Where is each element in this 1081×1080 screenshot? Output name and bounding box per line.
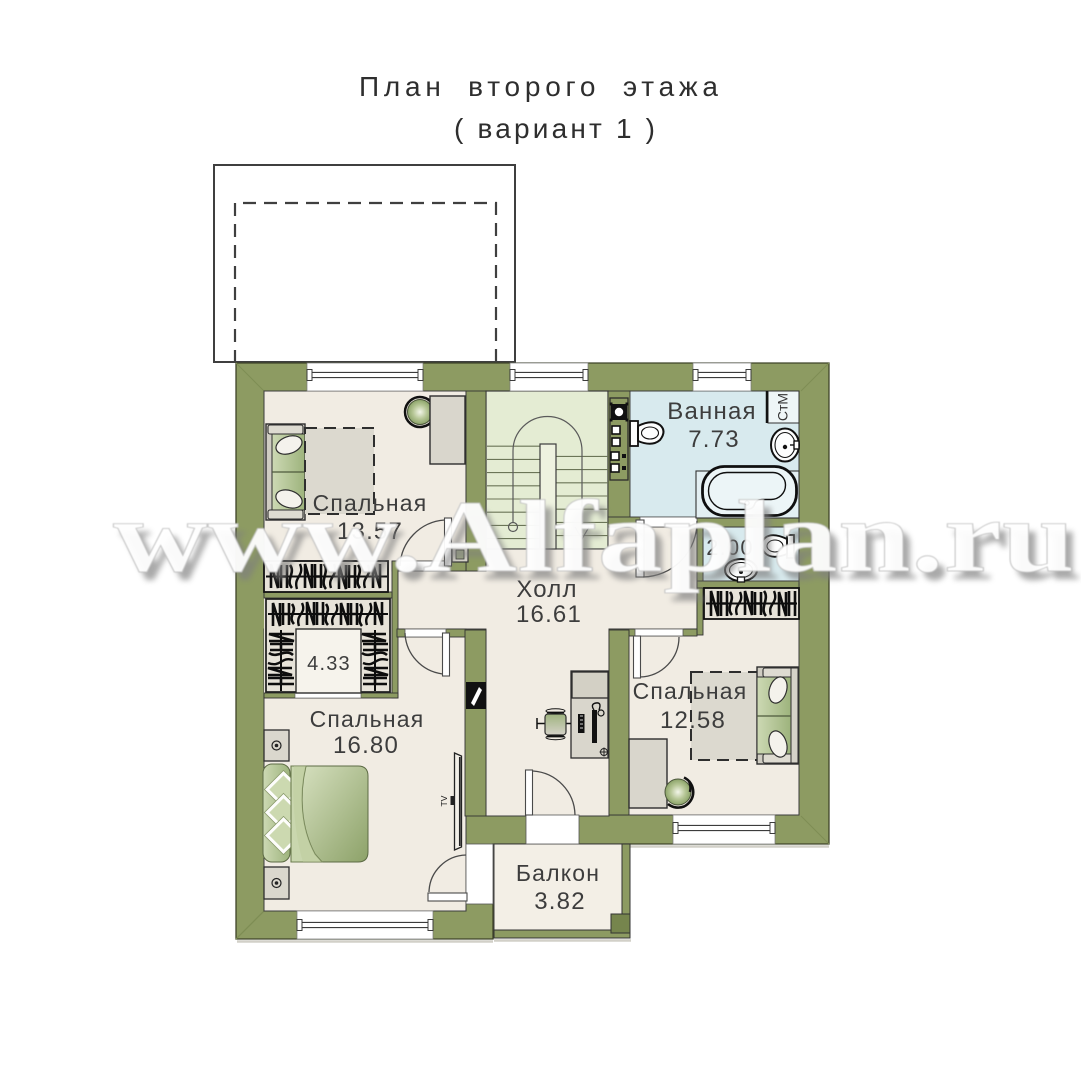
svg-text:www.Alfaplan.ru: www.Alfaplan.ru <box>113 480 1075 594</box>
svg-text:Ванная: Ванная <box>667 398 756 425</box>
svg-text:4.33: 4.33 <box>307 653 351 675</box>
svg-text:Спальная: Спальная <box>633 678 748 704</box>
svg-text:План второго этажа: План второго этажа <box>359 71 721 102</box>
svg-text:3.82: 3.82 <box>534 888 586 915</box>
svg-text:16.61: 16.61 <box>516 601 582 628</box>
svg-text:12.58: 12.58 <box>660 707 726 734</box>
svg-text:СтМ: СтМ <box>775 393 791 421</box>
svg-text:Спальная: Спальная <box>310 706 425 732</box>
svg-text:7.73: 7.73 <box>688 426 740 453</box>
svg-text:( вариант 1 ): ( вариант 1 ) <box>454 113 658 144</box>
svg-text:16.80: 16.80 <box>333 732 399 759</box>
svg-text:Балкон: Балкон <box>516 860 600 886</box>
svg-text:TV: TV <box>439 795 449 806</box>
